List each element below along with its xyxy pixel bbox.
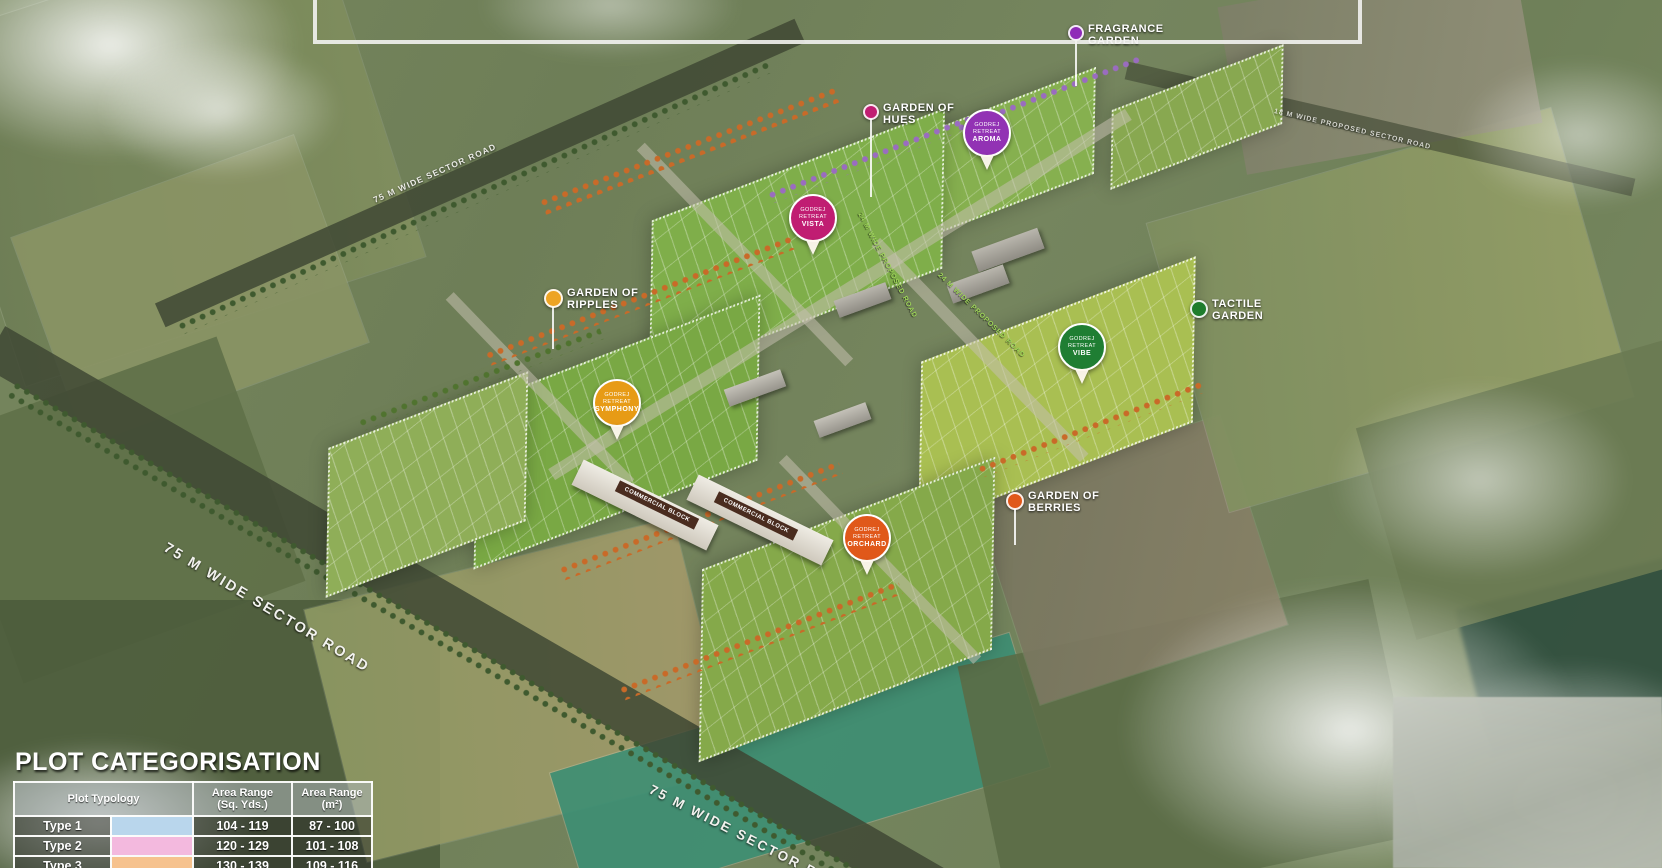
garden-dot	[1190, 300, 1208, 318]
header-line: (Sq. Yds.)	[195, 799, 290, 811]
garden-marker-label: GARDEN OF HUES	[883, 102, 954, 126]
cell-sqyds: 130 - 139	[193, 856, 292, 868]
garden-dot	[1006, 492, 1024, 510]
pin-tail	[610, 425, 624, 440]
garden-label-line2: BERRIES	[1028, 502, 1099, 514]
cell-sqm: 109 - 116	[292, 856, 372, 868]
pin-name: AROMA	[973, 135, 1002, 144]
masterplan-canvas: COMMERCIAL BLOCK COMMERCIAL BLOCK 75 M W…	[0, 0, 1662, 868]
garden-marker-label: TACTILE GARDEN	[1212, 298, 1263, 322]
garden-marker-stick	[1075, 40, 1077, 86]
pin-tail	[806, 240, 820, 255]
building	[971, 228, 1044, 273]
garden-label-line2: GARDEN	[1212, 310, 1263, 322]
pin-name: ORCHARD	[847, 540, 886, 549]
pin-bubble: GODREJ RETREAT SYMPHONY	[593, 379, 641, 427]
pin-bubble: GODREJ RETREAT VISTA	[789, 194, 837, 242]
garden-label-line1: GARDEN OF	[1028, 490, 1099, 502]
garden-label-line1: GARDEN OF	[567, 287, 638, 299]
pin-tail	[1075, 369, 1089, 384]
cloud	[1330, 380, 1630, 580]
pin-godrej-retreat-vista[interactable]: GODREJ RETREAT VISTA	[789, 194, 837, 255]
garden-marker-stick	[552, 307, 554, 349]
pin-tail	[860, 560, 874, 575]
pin-godrej-retreat-vibe[interactable]: GODREJ RETREAT VIBE	[1058, 323, 1106, 384]
garden-marker-berries[interactable]: GARDEN OF BERRIES	[1006, 492, 1024, 510]
cell-sqyds: 120 - 129	[193, 836, 292, 856]
garden-marker-label: GARDEN OF BERRIES	[1028, 490, 1099, 514]
garden-label-line2: HUES	[883, 114, 954, 126]
pin-tail	[980, 155, 994, 170]
header-area-sqm: Area Range (m²)	[292, 782, 372, 816]
cell-type-label: Type 2	[14, 836, 111, 856]
pin-godrej-retreat-orchard[interactable]: GODREJ RETREAT ORCHARD	[843, 514, 891, 575]
header-line: (m²)	[294, 799, 370, 811]
lowres-fog-patch	[1393, 697, 1662, 868]
header-line: Area Range	[294, 787, 370, 799]
plot-categorisation-legend: PLOT CATEGORISATION Plot Typology Area R…	[13, 748, 371, 868]
pin-name: VIBE	[1073, 349, 1091, 358]
table-row-type3: Type 3 130 - 139 109 - 116	[14, 856, 372, 868]
garden-label-line2: RIPPLES	[567, 299, 638, 311]
cell-type-label: Type 3	[14, 856, 111, 868]
pin-godrej-retreat-aroma[interactable]: GODREJ RETREAT AROMA	[963, 109, 1011, 170]
garden-marker-label: GARDEN OF RIPPLES	[567, 287, 638, 311]
garden-dot	[863, 104, 879, 120]
header-area-sqyds: Area Range (Sq. Yds.)	[193, 782, 292, 816]
table-row-type1: Type 1 104 - 119 87 - 100	[14, 816, 372, 836]
garden-dot	[544, 289, 563, 308]
type3-color-swatch	[111, 856, 193, 868]
garden-marker-hues[interactable]: GARDEN OF HUES	[863, 104, 879, 120]
garden-marker-stick	[1014, 509, 1016, 545]
pin-name: SYMPHONY	[595, 405, 639, 414]
plot-categorisation-table: Plot Typology Area Range (Sq. Yds.) Area…	[13, 781, 373, 868]
header-line: Area Range	[195, 787, 290, 799]
type1-color-swatch	[111, 816, 193, 836]
cell-type-label: Type 1	[14, 816, 111, 836]
building	[814, 402, 872, 438]
table-row-type2: Type 2 120 - 129 101 - 108	[14, 836, 372, 856]
table-header-row: Plot Typology Area Range (Sq. Yds.) Area…	[14, 782, 372, 816]
legend-title: PLOT CATEGORISATION	[15, 748, 371, 777]
cell-sqm: 87 - 100	[292, 816, 372, 836]
garden-marker-ripples[interactable]: GARDEN OF RIPPLES	[544, 289, 563, 308]
pin-bubble: GODREJ RETREAT ORCHARD	[843, 514, 891, 562]
header-plot-typology: Plot Typology	[14, 782, 193, 816]
pin-name: VISTA	[802, 220, 825, 229]
cloud	[100, 40, 340, 180]
pin-bubble: GODREJ RETREAT AROMA	[963, 109, 1011, 157]
cell-sqyds: 104 - 119	[193, 816, 292, 836]
cell-sqm: 101 - 108	[292, 836, 372, 856]
garden-label-line1: TACTILE	[1212, 298, 1263, 310]
pin-godrej-retreat-symphony[interactable]: GODREJ RETREAT SYMPHONY	[593, 379, 641, 440]
type2-color-swatch	[111, 836, 193, 856]
garden-label-line1: GARDEN OF	[883, 102, 954, 114]
highlight-frame	[313, 0, 1362, 44]
pin-bubble: GODREJ RETREAT VIBE	[1058, 323, 1106, 371]
garden-marker-stick	[870, 119, 872, 197]
garden-marker-tactile[interactable]: TACTILE GARDEN	[1190, 300, 1208, 318]
